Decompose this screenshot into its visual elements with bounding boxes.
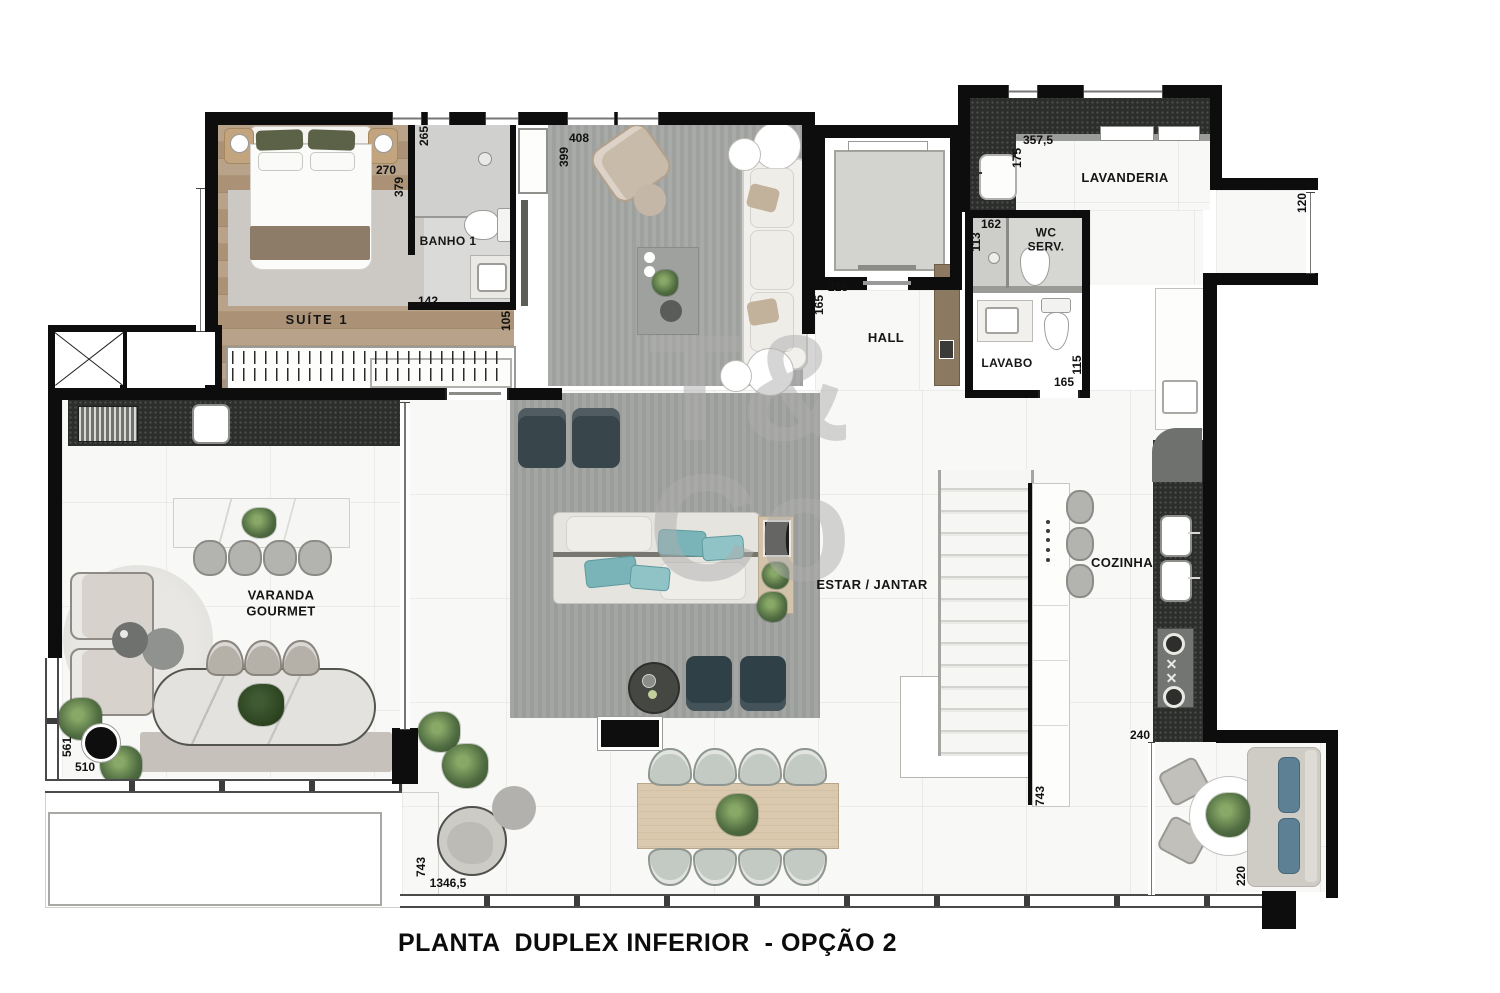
estar-sofa-chaise-1 [566, 516, 652, 552]
suite-door-leaf [449, 392, 501, 395]
closet-hangers-row2 [232, 368, 502, 381]
console-plant-1 [762, 562, 789, 589]
cooktop-knob-1 [1166, 658, 1177, 669]
dim-743-stairs: 743 [1034, 786, 1046, 806]
dim-115: 115 [1071, 355, 1083, 374]
dim-162: 162 [981, 218, 1001, 230]
window-top-3 [485, 112, 519, 125]
dining-plant [716, 794, 758, 836]
elevator-door-line [863, 281, 911, 285]
wall-terrace-corner [1262, 891, 1296, 929]
wall-right-main [1203, 285, 1217, 742]
stairs [938, 470, 1034, 756]
terrace-sofa-back [1305, 750, 1317, 882]
lounge-table-dark [112, 622, 148, 658]
wall-lavanderia-notch-bottom [1203, 273, 1318, 285]
kitchen-corner-appliance [1152, 428, 1202, 482]
dim-113: 113 [970, 232, 982, 251]
window-lavanderia-1 [1008, 85, 1038, 98]
lavabo-door-gap [1038, 390, 1080, 398]
lavabo-toilet-bowl [1044, 312, 1069, 350]
estar-chair-3 [686, 656, 732, 711]
lavanderia-cabinet-1 [1158, 126, 1200, 141]
wall-lavanderia-left [958, 85, 970, 212]
bed-pillow-green-right [308, 129, 356, 151]
living-sofa-cushion-2 [750, 230, 794, 290]
terrace-plant [1206, 793, 1250, 837]
wcserv-shower-icon [988, 252, 1000, 264]
living-side-table-4 [720, 360, 752, 392]
shaft-wall-left [48, 325, 55, 392]
cooktop-burner-2 [1163, 686, 1185, 708]
wc-lavabo-divider [973, 286, 1082, 293]
dim-165-hall: 165 [813, 295, 825, 315]
shaft-cell-blank [127, 332, 215, 385]
kitchen-sink-2 [1160, 560, 1192, 602]
dim-142: 142 [418, 295, 438, 307]
dim-270: 270 [376, 164, 396, 176]
varanda-stool-3 [263, 540, 297, 576]
dim-165-lavabo: 165 [1054, 376, 1074, 388]
bed-pillow-green-left [256, 129, 304, 151]
estar-round-table [628, 662, 680, 714]
lavabo-sink [985, 307, 1019, 334]
lounge-table-dark-cup [120, 630, 128, 638]
corridor-cabinet [518, 128, 548, 194]
terrace-cushion-2 [1278, 818, 1300, 874]
kitchen-island-div1 [1033, 605, 1068, 606]
estar-plant-2 [442, 744, 488, 788]
laundry-tank-faucet [972, 172, 982, 174]
round-armchair-seat [447, 822, 493, 864]
wall-elevator-bottom-r [908, 277, 962, 290]
island-stool-2 [1066, 527, 1094, 561]
elevator-vent [848, 141, 928, 151]
island-stool-3 [1066, 564, 1094, 598]
estar-round-table-cup2 [648, 690, 657, 699]
dim-175: 175 [1011, 148, 1023, 168]
window-top-4 [567, 112, 615, 125]
dim-561: 561 [61, 737, 73, 757]
kitchen-sink-1 [1160, 515, 1192, 557]
dim-105: 105 [500, 311, 512, 331]
estar-chair-4 [740, 656, 786, 711]
estar-pillow-4 [701, 535, 745, 562]
living-sofa-pillow-2 [746, 298, 780, 327]
wall-lavanderia-right-upper [1210, 85, 1222, 190]
hall-sideboard-frame [939, 340, 954, 359]
varanda-stool-2 [228, 540, 262, 576]
living-side-table-1 [753, 122, 801, 170]
varanda-glass-door [400, 402, 410, 730]
varanda-stool-4 [298, 540, 332, 576]
lounge-table-gray [142, 628, 184, 670]
island-stool-1 [1066, 490, 1094, 524]
living-side-table-2 [728, 138, 761, 171]
wall-elevator-left [812, 125, 825, 290]
tv-frame [763, 520, 791, 557]
bed-pillow-white-right [310, 152, 355, 171]
kitchen-island-div3 [1033, 725, 1068, 726]
room-label-estar-jantar: ESTAR / JANTAR [816, 577, 927, 593]
elevator-car [834, 150, 945, 271]
varanda-sink [192, 404, 230, 444]
estar-round-table-cup1 [642, 674, 656, 688]
dim-265: 265 [418, 126, 430, 146]
varanda-railing [45, 779, 402, 793]
kitchen-island [1032, 483, 1070, 807]
window-suite-left [196, 188, 205, 332]
room-label-cozinha: COZINHA [1091, 555, 1153, 571]
varanda-firepit [82, 724, 120, 762]
island-controls [1046, 520, 1050, 524]
shower-head-icon [478, 152, 492, 166]
room-label-varanda: VARANDA GOURMET [225, 587, 337, 618]
dim-743-varanda: 743 [415, 857, 427, 877]
living-coffee-plant [652, 270, 678, 296]
cooktop-knob-2 [1166, 672, 1177, 683]
elevator-door [858, 265, 916, 270]
varanda-pillar [392, 728, 418, 784]
wall-elevator-top [812, 125, 962, 138]
dim-357-5: 357,5 [1023, 134, 1053, 146]
dim-120: 120 [1296, 193, 1308, 213]
banho1-sink [477, 263, 507, 292]
wall-terrace-right [1326, 730, 1338, 898]
varanda-stool-1 [193, 540, 227, 576]
console-plant-2 [757, 592, 787, 622]
lavanderia-cabinet-2 [1100, 126, 1154, 141]
wall-lavanderia-notch-top [1216, 178, 1318, 190]
dim-240: 240 [1130, 729, 1150, 741]
floor-lavanderia-2 [1090, 210, 1203, 285]
wall-terrace-top [1216, 730, 1338, 743]
cooktop-burner-1 [1163, 633, 1185, 655]
dim-408: 408 [569, 132, 589, 144]
room-label-hall: HALL [868, 330, 904, 346]
plan-title: PLANTA DUPLEX INFERIOR - OPÇÃO 2 [398, 930, 897, 958]
varanda-grill [78, 406, 138, 442]
lavabo-toilet-tank [1041, 298, 1071, 313]
wall-banho-right [510, 120, 516, 308]
varanda-oval-plant [238, 684, 284, 726]
window-top-1 [392, 112, 422, 125]
room-label-lavanderia: LAVANDERIA [1081, 170, 1168, 186]
kitchen-faucet-1 [1188, 532, 1200, 534]
lamp-right [374, 134, 393, 153]
wall-varanda-left [48, 392, 62, 658]
fireplace [598, 717, 662, 750]
dim-215: 215 [828, 281, 848, 293]
room-label-lavabo: LAVABO [981, 356, 1032, 370]
closet-hangers-row1 [232, 351, 502, 364]
wcserv-partition [1006, 218, 1009, 288]
room-label-suite1: SUÍTE 1 [285, 312, 348, 328]
window-top-2 [427, 112, 450, 125]
wall-banho-left [408, 120, 415, 255]
room-label-banho1: BANHO 1 [420, 234, 477, 248]
estar-armchair-1 [518, 408, 566, 468]
room-label-wcserv: WC SERV. [1020, 226, 1072, 255]
floor-lavanderia-bump [1216, 190, 1306, 273]
living-pouf [634, 184, 666, 216]
ottoman [492, 786, 536, 830]
kitchen-island-div2 [1033, 660, 1068, 661]
estar-sofa-chaise-2 [660, 562, 746, 600]
dim-1346-5: 1346,5 [430, 877, 467, 889]
window-top-5 [617, 112, 659, 125]
bed-blanket [250, 226, 370, 260]
terrace-glass-edge [1148, 742, 1155, 896]
kitchen-faucet-2 [1188, 577, 1200, 579]
estar-armchair-2 [572, 408, 620, 468]
estar-pillow-3 [657, 529, 706, 557]
dim-399: 399 [558, 147, 570, 167]
living-side-table-3 [746, 348, 794, 396]
lamp-left [230, 134, 249, 153]
kitchen-tanque-sink [1162, 380, 1198, 414]
floor-plan: SUÍTE 1 BANHO 1 HALL LAVANDERIA WC SERV.… [0, 0, 1500, 993]
dim-510: 510 [75, 761, 95, 773]
terrace-cushion-1 [1278, 757, 1300, 813]
corridor-door-panel [521, 200, 528, 306]
estar-railing [400, 894, 1266, 908]
dim-379: 379 [393, 177, 405, 197]
dim-220: 220 [1235, 866, 1247, 886]
bed-pillow-white-left [258, 152, 303, 171]
living-coffee-bowl [660, 300, 682, 322]
stairs-wall-line [1028, 483, 1032, 805]
varanda-left-railing [45, 658, 59, 779]
estar-pillow-2 [629, 564, 671, 591]
window-lavanderia-2 [1083, 85, 1163, 98]
varanda-island-plant [242, 508, 276, 538]
pool [48, 812, 382, 906]
living-coffee-plate-1 [644, 252, 655, 263]
